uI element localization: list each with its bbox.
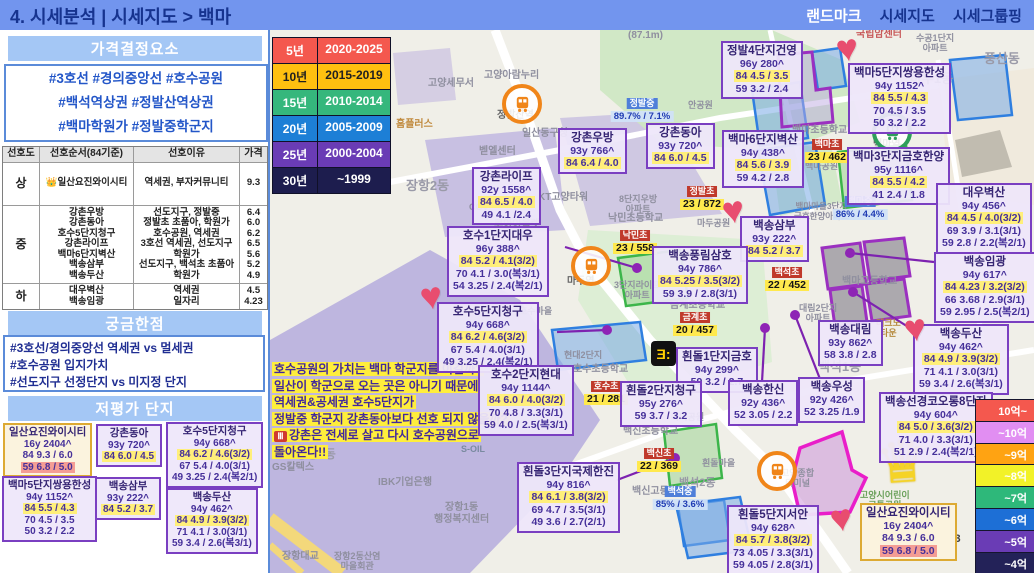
analyst-note-line: 일산이 학군으로 오는 곳은 아니기 때문에	[272, 378, 512, 395]
slide-canvas: 4. 시세분석 | 시세지도 > 백마 랜드마크 시세지도 시세그룹핑	[0, 0, 1034, 573]
hashtag-line: #백석역상권 #정발산역상권	[6, 91, 266, 115]
map-place-label: IBK기업은행	[378, 477, 432, 489]
year-legend-label: 10년	[273, 64, 317, 89]
apt-card-line: 71 4.1 / 3.0(3/1)	[172, 527, 252, 539]
price-legend-item: ~8억	[976, 465, 1034, 486]
price-value: 6.0	[241, 218, 266, 229]
school-stat-value: 85% / 3.6%	[653, 499, 708, 510]
nav-price-grouping[interactable]: 시세그룹핑	[953, 8, 1022, 25]
apt-card-line: 96y 388^	[453, 243, 543, 256]
year-legend-label: 15년	[273, 90, 317, 115]
apt-card-title: 흰돌1단지금호	[682, 351, 752, 364]
apt-card-line: 95y 276^	[626, 398, 696, 411]
school-name: 낙민초	[620, 230, 651, 241]
map-place-label: 풍산동	[984, 52, 1020, 67]
train-station-icon[interactable]	[502, 84, 542, 124]
questions-box: #3호선/경의중앙선 역세권 vs 멀세권#호수공원 입지가치#선도지구 선정단…	[3, 335, 265, 392]
apt-card-title: 백송대림	[824, 324, 877, 337]
apt-card-line: 94y 668^	[172, 438, 257, 450]
apt-price-card: 일산요진와이시티16y 2404^84 9.3 / 6.059 6.8 / 5.…	[3, 423, 92, 477]
apt-price-card: 강촌동아93y 720^84 6.0 / 4.5	[646, 123, 715, 169]
apt-card-line: 59 3.4 / 2.6(복3/1)	[919, 378, 1003, 391]
price-value: 5.2	[241, 260, 266, 271]
apt-card-line: 94y 456^	[942, 200, 1026, 213]
apt-card-line: 93y 720^	[102, 440, 156, 452]
apt-card-title: 강촌동아	[652, 127, 709, 140]
apt-card-line: 84 4.9 / 3.9(3/2)	[919, 353, 1003, 366]
year-legend-range: 2005-2009	[318, 116, 390, 141]
apt-card-title: 정발4단지건영	[727, 45, 797, 58]
map-place-label: 장항대교	[282, 551, 319, 563]
apt-card-line: 94y 438^	[728, 147, 798, 160]
analyst-note-line: 돌아온다!!	[272, 444, 512, 461]
apt-card-title: 백마3단지금호한양	[853, 151, 944, 164]
apt-price-card: 백송두산94y 462^84 4.9 / 3.9(3/2)71 4.1 / 3.…	[166, 488, 258, 554]
apt-card-title: 일산요진와이시티	[866, 507, 951, 520]
school-stat-label: 백석중85% / 3.6%	[653, 484, 708, 510]
apt-card-line: 84 5.2 / 3.7	[101, 504, 155, 516]
school-name: 정발중	[627, 98, 658, 109]
analyst-note-line: Ⅲ강촌은 전세로 살고 다시 호수공원으로	[272, 427, 512, 444]
price-legend-item: ~7억	[976, 487, 1034, 508]
apt-card-line: 16y 2404^	[866, 520, 951, 533]
bank-icon: Ⅲ	[274, 431, 287, 442]
apt-card-line: 84 5.5 / 4.3	[8, 503, 91, 515]
apt-card-title: 백송임광	[940, 256, 1030, 269]
map-place-label: (87.1m)	[628, 30, 663, 42]
map-place-label: 고양세무서	[428, 78, 474, 90]
school-stat-value: 23 / 872	[680, 199, 724, 210]
apt-card-line: 84 9.3 / 6.0	[866, 532, 951, 545]
preference-reason: 역세권, 부자커뮤니티	[135, 178, 238, 189]
year-legend-range: 2020-2025	[318, 38, 390, 63]
apt-card-line: 84 5.6 / 3.9	[728, 159, 798, 172]
apt-price-card: 호수5단지청구94y 668^84 6.2 / 4.6(3/2)67 5.4 /…	[437, 302, 539, 373]
year-legend-label: 25년	[273, 142, 317, 167]
apt-card-line: 93y 862^	[824, 337, 877, 350]
apt-card-line: 94y 299^	[682, 364, 752, 377]
map-place-label: GS칼텍스	[272, 462, 314, 474]
question-line: #선도지구 선정단지 vs 미지정 단지	[10, 374, 258, 391]
apt-card-line: 94y 786^	[658, 263, 742, 276]
apt-card-line: 71 4.1 / 3.0(3/1)	[919, 366, 1003, 379]
apt-card-line: 84 6.4 / 4.0	[564, 157, 621, 170]
year-legend-range: 2000-2004	[318, 142, 390, 167]
apt-card-title: 백송삼부	[746, 220, 803, 233]
apt-price-card: 백마5단지쌍용한성94y 1152^84 5.5 / 4.370 4.5 / 3…	[848, 63, 951, 134]
map-place-label: 장항2동	[406, 179, 449, 194]
apt-card-line: 52 3.05 / 2.2	[734, 409, 792, 422]
complex-name: 백송임광	[41, 297, 132, 308]
prices-cell: 6.46.06.26.55.65.24.9	[239, 206, 267, 284]
complex-name: 👑일산요진와이시티	[41, 178, 132, 189]
school-stat-label: 백석초22 / 452	[765, 265, 809, 291]
apt-card-title: 백송삼부	[101, 481, 155, 493]
hashtag-line: #3호선 #경의중앙선 #호수공원	[6, 67, 266, 91]
apt-price-card: 백송임광94y 617^84 4.23 / 3.2(3/2)66 3.68 / …	[934, 252, 1034, 323]
header-bar: 4. 시세분석 | 시세지도 > 백마 랜드마크 시세지도 시세그룹핑	[0, 0, 1034, 30]
apt-card-line: 94y 1152^	[8, 492, 91, 504]
school-name: 백석중	[665, 486, 696, 497]
apt-card-line: 59 2.8 / 2.2(복2/1)	[942, 237, 1026, 250]
year-legend-label: 5년	[273, 38, 317, 63]
apt-card-line: 67 5.4 / 4.0(3/1)	[172, 461, 257, 473]
apt-card-line: 84 5.0 / 3.6(3/2)	[885, 421, 987, 434]
year-legend-label: 20년	[273, 116, 317, 141]
apt-card-line: 93y 766^	[564, 145, 621, 158]
apt-card-title: 백송두산	[919, 328, 1003, 341]
apt-price-card: 대우벽산94y 456^84 4.5 / 4.0(3/2)69 3.9 / 3.…	[936, 183, 1032, 254]
apt-card-title: 백송한신	[734, 384, 792, 397]
question-line: #3호선/경의중앙선 역세권 vs 멀세권	[10, 340, 258, 357]
school-stat-value: 23 / 558	[613, 243, 657, 254]
apt-card-line: 93y 720^	[652, 140, 709, 153]
apt-card-line: 70 4.8 / 3.3(3/1)	[484, 407, 568, 420]
apt-price-card: 백마3단지금호한양95y 1116^84 5.5 / 4.241 2.4 / 1…	[847, 147, 950, 205]
apt-card-title: 강촌동아	[102, 428, 156, 440]
market-icon: Ǝ:	[651, 341, 676, 366]
table-group-row: 중강촌우방강촌동아호수5단지청구강촌라이프백마6단지벽산백송삼부백송두산선도지구…	[3, 205, 267, 284]
apt-card-title: 백송풍림삼호	[658, 250, 742, 263]
school-stat-label: 백신초22 / 369	[637, 446, 681, 472]
apt-card-line: 59 3.7 / 3.2	[626, 410, 696, 423]
reasons-cell: 역세권일자리	[133, 284, 239, 309]
school-stat-label: 낙민초23 / 558	[613, 228, 657, 254]
apt-card-line: 59 6.8 / 5.0	[866, 545, 951, 558]
apt-price-card: 백송우성92y 426^52 3.25 /1.9	[798, 377, 865, 423]
apt-card-line: 54 3.25 / 2.4(복2/1)	[453, 280, 543, 293]
apt-card-line: 84 6.0 / 4.5	[652, 152, 709, 165]
school-stat-value: 20 / 457	[673, 325, 717, 336]
grade-cell: 하	[3, 284, 39, 309]
apt-card-line: 84 4.5 / 4.0(3/2)	[942, 212, 1026, 225]
apt-price-card: 흰돌3단지국제한진94y 816^84 6.1 / 3.8(3/2)69 4.7…	[517, 462, 620, 533]
apt-card-line: 59 6.8 / 5.0	[9, 462, 86, 474]
train-station-icon[interactable]	[571, 246, 611, 286]
apt-price-card: 흰돌2단지청구95y 276^59 3.7 / 3.2	[620, 381, 702, 427]
header-nav: 랜드마크 시세지도 시세그룹핑	[792, 5, 1022, 26]
apt-card-line: 96y 280^	[727, 58, 797, 71]
apt-card-title: 호수5단지청구	[172, 426, 257, 438]
apt-card-line: 70 4.5 / 3.5	[854, 105, 945, 118]
complex-name: 대우벽산	[41, 286, 132, 297]
reasons-cell: 선도지구, 정발중정발초 초품아, 학원가호수공원, 역세권3호선 역세권, 선…	[133, 206, 239, 284]
preference-reason: 역세권	[135, 286, 238, 297]
apt-card-line: 59 4.05 / 2.8(3/1)	[733, 559, 813, 572]
apt-card-line: 51 2.9 / 2.4(복2/1)	[885, 446, 987, 459]
table-group-row: 하대우벽산백송임광역세권일자리4.54.23	[3, 283, 267, 309]
apt-card-line: 94y 668^	[443, 319, 533, 332]
price-value: 9.3	[241, 178, 266, 189]
apt-card-title: 백송선경코오롱8단지	[885, 396, 987, 409]
apt-card-line: 84 6.0 / 4.0(3/2)	[484, 394, 568, 407]
apt-card-line: 84 6.2 / 4.6(3/2)	[172, 449, 257, 461]
apt-card-line: 94y 462^	[172, 504, 252, 516]
apt-price-card: 일산요진와이시티16y 2404^84 9.3 / 6.059 6.8 / 5.…	[860, 503, 957, 561]
apt-card-line: 92y 1558^	[478, 184, 535, 197]
nav-landmark[interactable]: 랜드마크	[806, 8, 861, 25]
reasons-cell: 역세권, 부자커뮤니티	[133, 163, 239, 205]
preference-reason: 정발초 초품아, 학원가	[135, 218, 238, 229]
apt-card-title: 강촌우방	[564, 132, 621, 145]
table-header-cell: 가격	[239, 147, 267, 162]
year-legend-label: 30년	[273, 168, 317, 193]
names-cell: 강촌우방강촌동아호수5단지청구강촌라이프백마6단지벽산백송삼부백송두산	[39, 206, 133, 284]
apt-price-card: 호수2단지현대94y 1144^84 6.0 / 4.0(3/2)70 4.8 …	[478, 365, 574, 436]
apt-card-title: 호수2단지현대	[484, 369, 568, 382]
apt-card-title: 흰돌3단지국제한진	[523, 466, 614, 479]
apt-card-line: 94y 604^	[885, 409, 987, 422]
apt-card-title: 호수5단지청구	[443, 306, 533, 319]
year-legend-range: 2010-2014	[318, 90, 390, 115]
apt-card-line: 92y 436^	[734, 397, 792, 410]
map-place-label: 장항1동 행정복지센터	[434, 502, 489, 525]
map-place-label: 백마고등학교	[842, 276, 897, 288]
map-place-label: 수공1단지 아파트	[916, 33, 954, 54]
grade-cell: 중	[3, 206, 39, 284]
analyst-note-line: 역세권&공세권 호수5단지가	[272, 394, 512, 411]
map-place-label: 고양아람누리	[484, 70, 539, 82]
apt-price-card: 백송풍림삼호94y 786^84 5.25 / 3.5(3/2)59 3.9 /…	[652, 246, 748, 304]
apt-card-line: 95y 1116^	[853, 164, 944, 177]
apt-card-line: 84 4.9 / 3.9(3/2)	[172, 515, 252, 527]
apt-card-line: 52 3.25 /1.9	[804, 406, 859, 419]
apt-price-card: 백마6단지벽산94y 438^84 5.6 / 3.959 4.2 / 2.8	[722, 130, 804, 188]
apt-card-line: 94y 462^	[919, 341, 1003, 354]
grade-cell: 상	[3, 163, 39, 205]
apt-card-line: 59 4.2 / 2.8	[728, 172, 798, 185]
apt-card-line: 84 6.0 / 4.5	[102, 451, 156, 463]
apt-card-line: 69 3.9 / 3.1(3/1)	[942, 225, 1026, 238]
preference-reason: 3호선 역세권, 선도지구	[135, 239, 238, 250]
preference-table: 선호도선호순서(84기준)선호이유가격상👑일산요진와이시티역세권, 부자커뮤니티…	[2, 146, 268, 310]
apt-card-line: 94y 1152^	[854, 80, 945, 93]
price-legend-item: ~9억	[976, 444, 1034, 465]
apt-card-title: 백송우성	[804, 381, 859, 394]
section-title-undervalued: 저평가 단지	[8, 396, 262, 421]
apt-price-card: 호수1단지대우96y 388^84 5.2 / 4.1(3/2)70 4.1 /…	[447, 226, 549, 297]
prices-cell: 9.3	[239, 163, 267, 205]
apt-card-title: 백마5단지쌍용한성	[8, 480, 91, 492]
school-stat-label: 정발초23 / 872	[680, 184, 724, 210]
analyst-note: 호수공원의 가치는 백마 학군지를 이길까?일산이 학군으로 오는 곳은 아니기…	[272, 361, 512, 460]
apt-card-line: 84 4.23 / 3.2(3/2)	[940, 281, 1030, 294]
school-stat-label: 백마초23 / 462	[805, 137, 849, 163]
apt-card-line: 49 3.25 / 2.4(복2/1)	[172, 472, 257, 484]
apt-card-line: 84 6.1 / 3.8(3/2)	[523, 491, 614, 504]
school-stat-label: 정발중89.7% / 7.1%	[611, 96, 674, 122]
apt-price-card: 정발4단지건영96y 280^84 4.5 / 3.559 3.2 / 2.4	[721, 41, 803, 99]
complex-name: 강촌동아	[41, 218, 132, 229]
apt-card-line: 84 5.5 / 4.3	[854, 92, 945, 105]
price-value: 4.9	[241, 271, 266, 282]
build-year-legend: 5년2020-202510년2015-201915년2010-201420년20…	[272, 37, 391, 194]
complex-name: 강촌라이프	[41, 239, 132, 250]
apt-card-title: 흰돌5단지서안	[733, 509, 813, 522]
table-header-cell: 선호이유	[133, 147, 239, 162]
section-title-price-factors: 가격결정요소	[8, 36, 262, 61]
question-line: #호수공원 입지가치	[10, 357, 258, 374]
apt-card-line: 94y 816^	[523, 479, 614, 492]
table-header-row: 선호도선호순서(84기준)선호이유가격	[3, 147, 267, 162]
apt-price-card: 백송한신92y 436^52 3.05 / 2.2	[728, 380, 798, 426]
apt-card-title: 호수1단지대우	[453, 230, 543, 243]
school-stat-value: 22 / 452	[765, 280, 809, 291]
apt-price-card: 강촌동아93y 720^84 6.0 / 4.5	[96, 424, 162, 467]
page-title: 4. 시세분석 | 시세지도 > 백마	[10, 3, 231, 29]
map-place-label: 안공원	[688, 100, 713, 110]
apt-card-line: 59 3.9 / 2.8(3/1)	[658, 288, 742, 301]
apt-card-line: 59 4.0 / 2.5(복3/1)	[484, 419, 568, 432]
school-name: 백신초	[644, 448, 675, 459]
apt-card-line: 84 6.5 / 4.0	[478, 196, 535, 209]
apt-card-line: 73 4.05 / 3.3(3/1)	[733, 547, 813, 560]
apt-card-line: 93y 222^	[101, 493, 155, 505]
school-stat-value: 23 / 462	[805, 152, 849, 163]
apt-card-line: 66 3.68 / 2.9(3/1)	[940, 294, 1030, 307]
apt-card-title: 대우벽산	[942, 187, 1026, 200]
map-place-label: 백신초등학교	[623, 426, 678, 438]
apt-card-line: 84 5.2 / 4.1(3/2)	[453, 255, 543, 268]
apt-card-line: 84 4.5 / 3.5	[727, 70, 797, 83]
preference-reason: 일자리	[135, 297, 238, 308]
school-name: 백마초	[812, 139, 843, 150]
apt-card-line: 69 4.7 / 3.5(3/1)	[523, 504, 614, 517]
price-legend-item: ~10억	[976, 422, 1034, 443]
apt-card-line: 67 5.4 / 4.0(3/1)	[443, 344, 533, 357]
apt-card-line: 50 3.2 / 2.2	[854, 117, 945, 130]
apt-card-line: 84 5.5 / 4.2	[853, 176, 944, 189]
apt-card-title: 일산요진와이시티	[9, 427, 86, 439]
map-place-label: 장항2동산염 마을회관	[334, 551, 380, 572]
hashtag-line: #백마학원가 #정발중학군지	[6, 115, 266, 139]
price-legend-item: ~6억	[976, 509, 1034, 530]
table-header-cell: 선호순서(84기준)	[39, 147, 133, 162]
table-header-cell: 선호도	[3, 147, 39, 162]
apt-card-line: 84 5.2 / 3.7	[746, 245, 803, 258]
section-title-questions: 궁금한점	[8, 311, 262, 336]
price-value: 6.5	[241, 239, 266, 250]
apt-card-line: 49 3.6 / 2.7(2/1)	[523, 516, 614, 529]
price-band-legend: 10억~~10억~9억~8억~7억~6억~5억~4억	[975, 399, 1034, 573]
apt-card-title: 백송두산	[172, 492, 252, 504]
preference-reason: 학원가	[135, 271, 238, 282]
map-place-label: 국립암센터	[856, 29, 902, 41]
apt-card-line: 59 3.2 / 2.4	[727, 83, 797, 96]
apt-card-line: 94y 628^	[733, 522, 813, 535]
map-place-label: 낙민초등학교	[608, 213, 663, 225]
map-place-label: 현대2단지	[564, 350, 602, 360]
table-group-row: 상👑일산요진와이시티역세권, 부자커뮤니티9.3	[3, 162, 267, 205]
school-name: 호수초	[591, 381, 622, 392]
school-name: 금계초	[680, 312, 711, 323]
apt-card-line: 70 4.5 / 3.5	[8, 515, 91, 527]
apt-card-title: 강촌라이프	[478, 171, 535, 184]
school-stat-value: 22 / 369	[637, 461, 681, 472]
year-legend-range: 2015-2019	[318, 64, 390, 89]
price-legend-item: ~4억	[976, 553, 1034, 573]
train-station-icon[interactable]	[757, 451, 797, 491]
apt-price-card: 강촌라이프92y 1558^84 6.5 / 4.049 4.1 /2.4	[472, 167, 541, 225]
names-cell: 대우벽산백송임광	[39, 284, 133, 309]
price-legend-item: ~5억	[976, 531, 1034, 552]
analyst-note-line: 정발중 학군지 강촌동아보다 선호 되지 않을까?	[272, 411, 512, 428]
apt-card-line: 92y 426^	[804, 394, 859, 407]
apt-card-line: 94y 617^	[940, 269, 1030, 282]
prices-cell: 4.54.23	[239, 284, 267, 309]
apt-price-card: 백송삼부93y 222^84 5.2 / 3.7	[740, 216, 809, 262]
hashtag-box: #3호선 #경의중앙선 #호수공원#백석역상권 #정발산역상권#백마학원가 #정…	[4, 64, 268, 142]
map-place-label: 흰돌마을	[702, 458, 735, 468]
complex-name: 백송두산	[41, 271, 132, 282]
school-name: 백석초	[772, 267, 803, 278]
price-legend-item: 10억~	[976, 400, 1034, 421]
school-stat-value: 89.7% / 7.1%	[611, 111, 674, 122]
apt-card-line: 84 5.25 / 3.5(3/2)	[658, 275, 742, 288]
price-value: 4.5	[241, 286, 266, 297]
apt-card-line: 58 3.8 / 2.8	[824, 349, 877, 362]
apt-card-line: 49 4.1 /2.4	[478, 209, 535, 222]
school-stat-value: 86% / 4.4%	[833, 209, 888, 220]
nav-price-map[interactable]: 시세지도	[880, 8, 935, 25]
apt-card-title: 흰돌2단지청구	[626, 385, 696, 398]
apt-card-title: 백마6단지벽산	[728, 134, 798, 147]
apt-card-line: 41 2.4 / 1.8	[853, 189, 944, 202]
apt-card-line: 59 2.95 / 2.5(복2/1)	[940, 306, 1030, 319]
year-legend-range: ~1999	[318, 168, 390, 193]
apt-card-title: 백마5단지쌍용한성	[854, 67, 945, 80]
map-place-label: 벧엘센터	[479, 146, 516, 158]
map-place-label: 홈플러스	[396, 119, 433, 131]
apt-card-line: 93y 222^	[746, 233, 803, 246]
apt-price-card: 백송대림93y 862^58 3.8 / 2.8	[818, 320, 883, 366]
apt-card-line: 59 3.4 / 2.6(복3/1)	[172, 538, 252, 550]
map-place-label: 8단지우방 아파트	[619, 194, 657, 215]
apt-price-card: 백송삼부93y 222^84 5.2 / 3.7	[95, 477, 161, 520]
preference-reason: 선도지구, 백석초 초품아	[135, 260, 238, 271]
names-cell: 👑일산요진와이시티	[39, 163, 133, 205]
apt-card-line: 84 9.3 / 6.0	[9, 450, 86, 462]
school-name: 정발초	[687, 186, 718, 197]
apt-card-line: 84 6.2 / 4.6(3/2)	[443, 331, 533, 344]
complex-name: 백송삼부	[41, 260, 132, 271]
apt-card-line: 70 4.1 / 3.0(복3/1)	[453, 268, 543, 281]
apt-price-card: 흰돌5단지서안94y 628^84 5.7 / 3.8(3/2)73 4.05 …	[727, 505, 819, 573]
apt-card-line: 84 5.7 / 3.8(3/2)	[733, 534, 813, 547]
map-place-label: 호수초등학교	[573, 364, 628, 376]
apt-card-line: 94y 1144^	[484, 382, 568, 395]
apt-price-card: 호수5단지청구94y 668^84 6.2 / 4.6(3/2)67 5.4 /…	[166, 422, 263, 488]
apt-price-card: 백마5단지쌍용한성94y 1152^84 5.5 / 4.370 4.5 / 3…	[2, 476, 97, 542]
school-stat-label: 금계초20 / 457	[673, 310, 717, 336]
apt-card-line: 50 3.2 / 2.2	[8, 526, 91, 538]
apt-card-line: 16y 2404^	[9, 439, 86, 451]
apt-card-line: 71 4.0 / 3.3(3/1)	[885, 434, 987, 447]
apt-price-card: 강촌우방93y 766^84 6.4 / 4.0	[558, 128, 627, 174]
price-value: 4.23	[241, 297, 266, 308]
map-place-label: KT고양타워	[538, 192, 588, 204]
